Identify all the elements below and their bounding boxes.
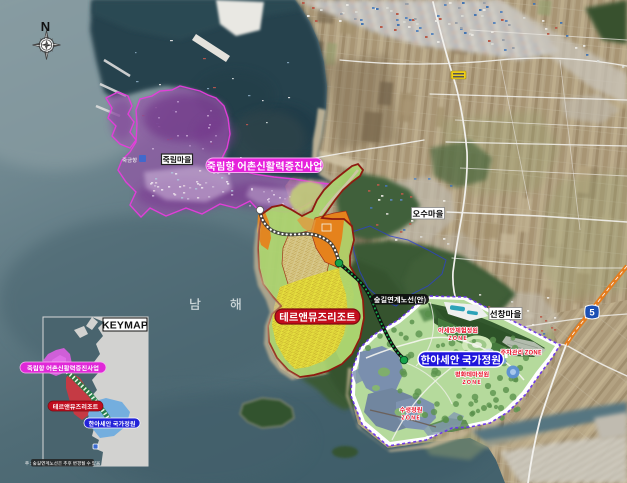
svg-text:5: 5	[589, 307, 595, 318]
svg-text:KEYMAP: KEYMAP	[102, 320, 148, 332]
svg-text:N: N	[41, 19, 50, 34]
